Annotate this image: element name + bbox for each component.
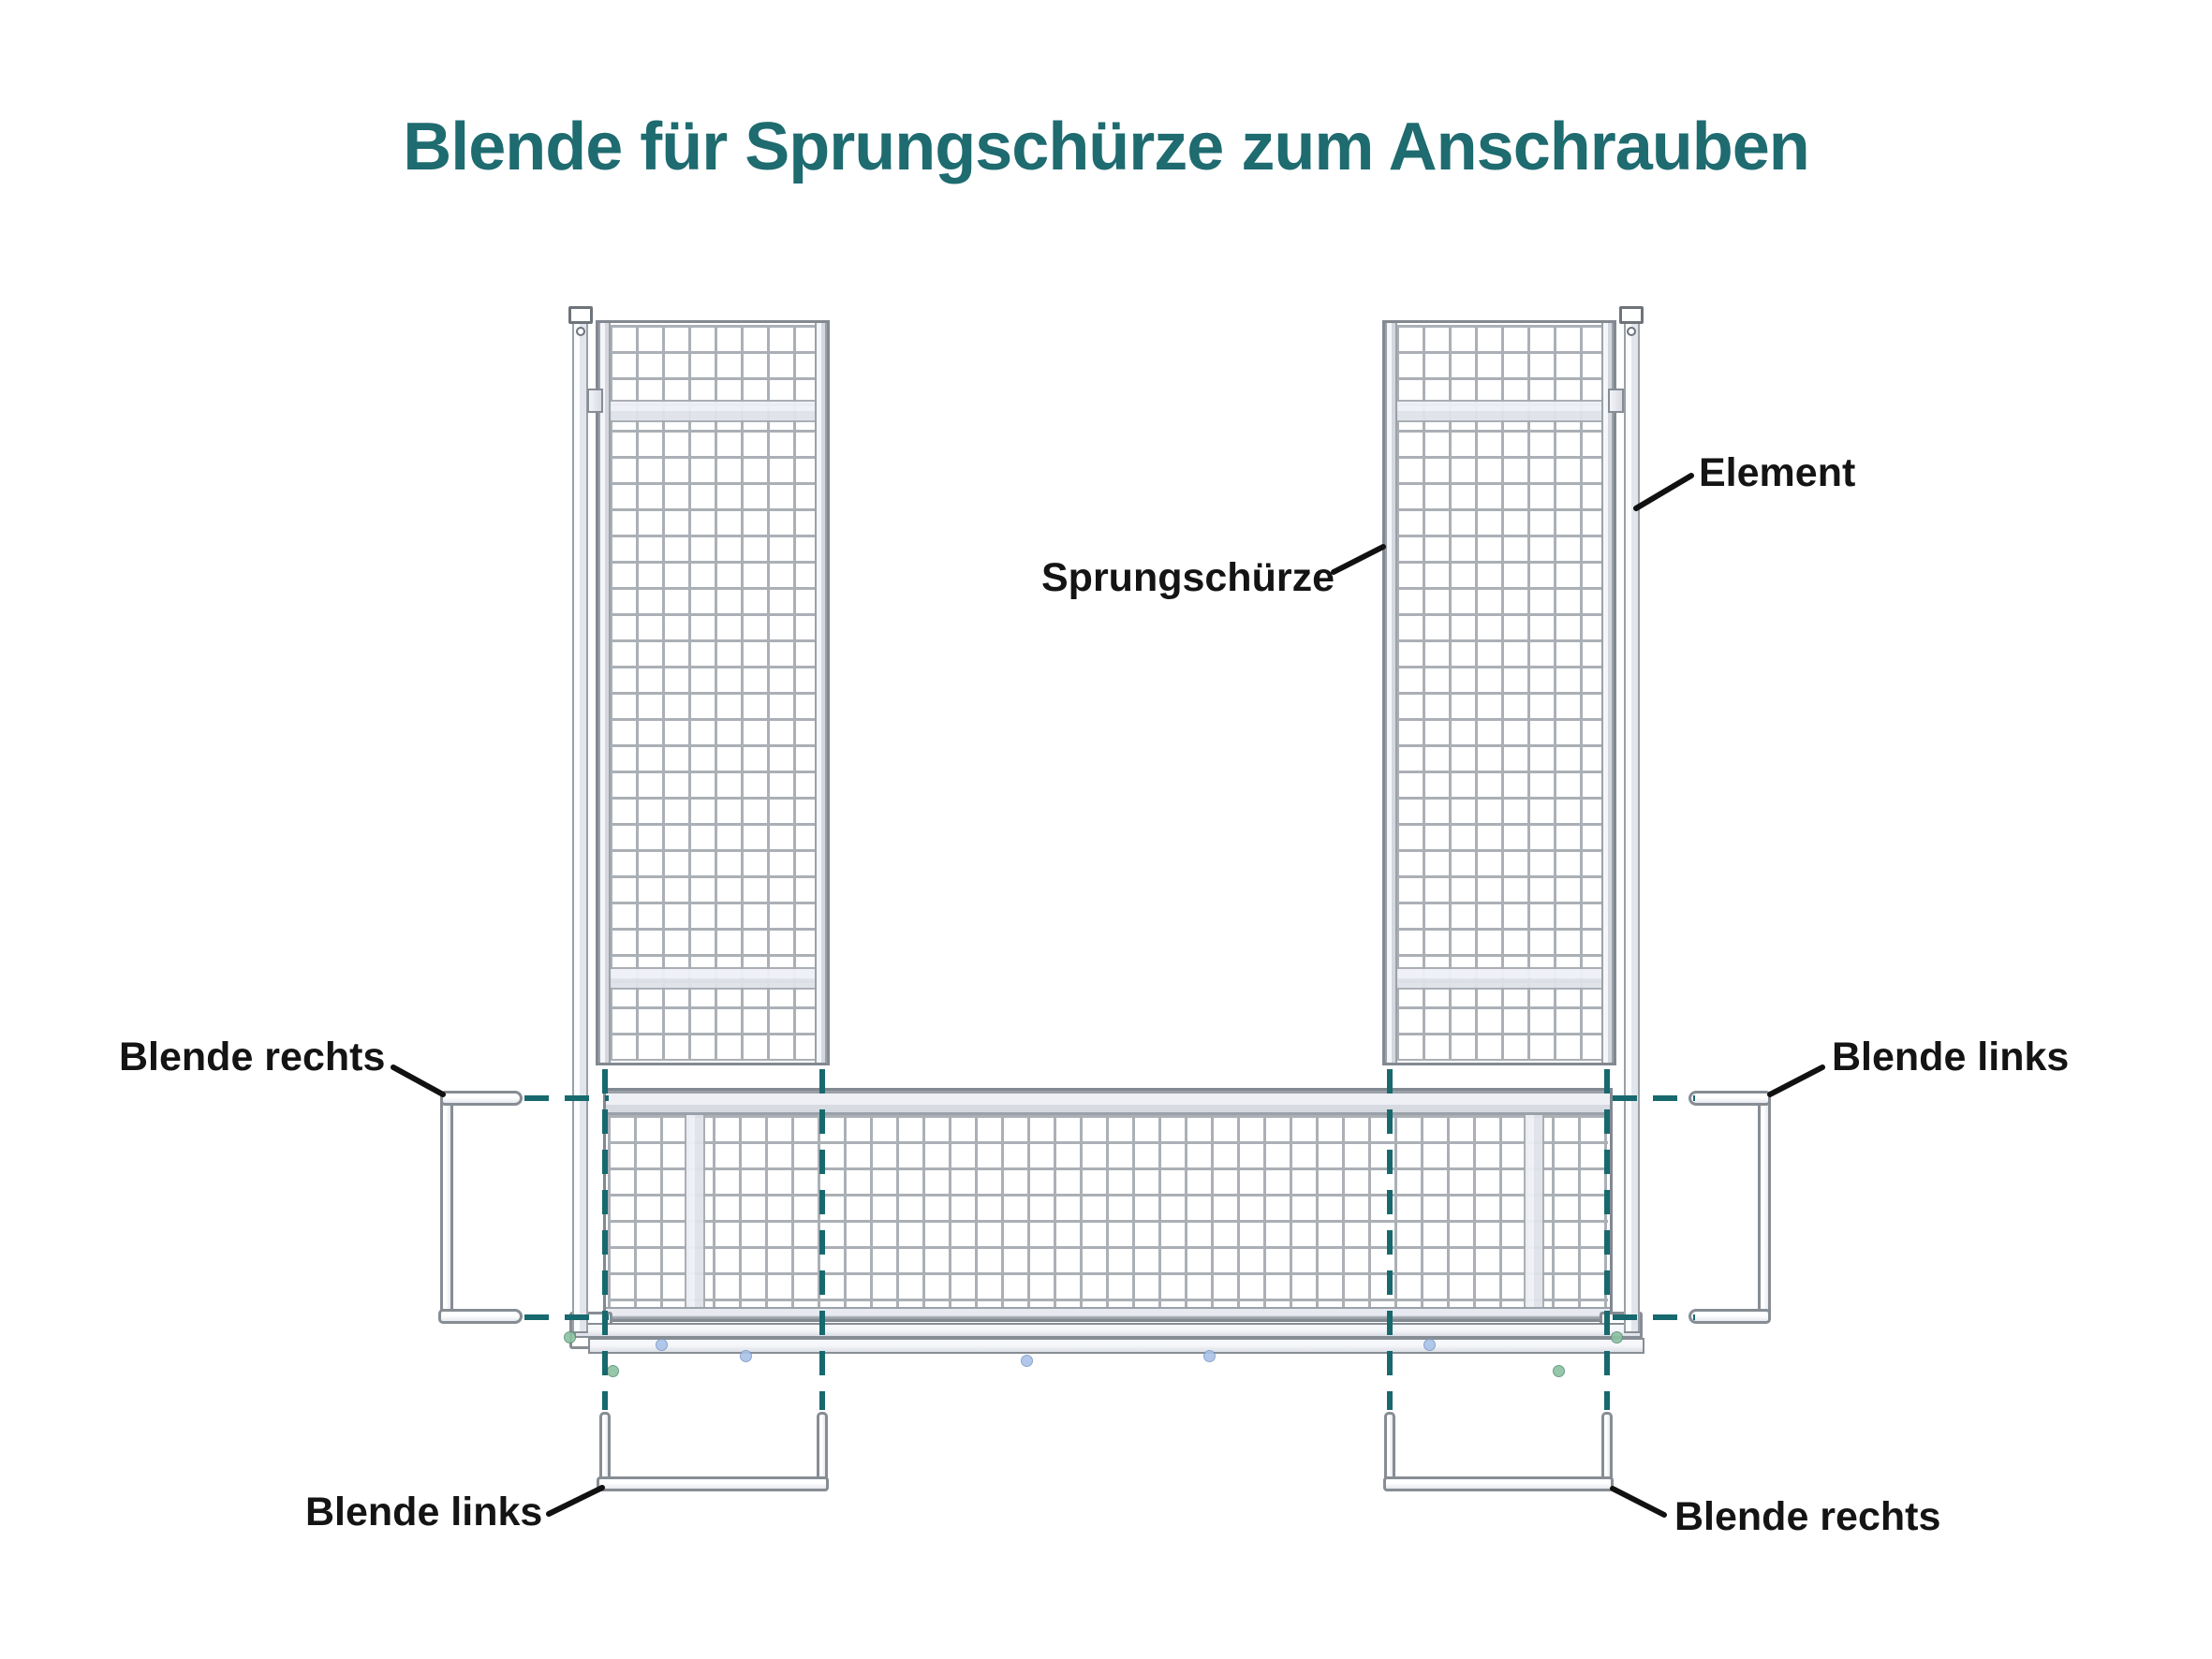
frame-rail-upper	[574, 1323, 1642, 1338]
panel-rail-bottom-bottom	[606, 1307, 1610, 1319]
mesh-panel-left	[596, 320, 830, 1065]
blende-links-bottom-bar	[597, 1476, 829, 1491]
label-sprungschuerze: Sprungschürze	[1041, 556, 1335, 600]
fastener-dot	[1553, 1365, 1565, 1377]
fastener-dot	[564, 1331, 576, 1343]
blende-rechts-side-bottom-arm	[438, 1309, 523, 1324]
blende-links-side-bar	[1758, 1092, 1771, 1324]
label-blende-links-bottom: Blende links	[305, 1490, 542, 1534]
mesh-panel-right	[1382, 320, 1616, 1065]
fastener-dot	[1203, 1350, 1216, 1362]
post-hole-right	[1627, 327, 1636, 336]
panel-rail-right-outer	[1601, 323, 1614, 1063]
support-tube-bottom-right	[1524, 1115, 1544, 1307]
leader-blende-links-mid	[1770, 1067, 1822, 1094]
leader-element	[1636, 476, 1691, 508]
leader-blende-links-bottom	[549, 1488, 602, 1514]
element-post-right	[1624, 322, 1640, 1333]
fastener-dot	[656, 1339, 668, 1351]
label-blende-links-mid: Blende links	[1832, 1035, 2069, 1079]
annotation-lines	[0, 0, 2212, 1659]
fastener-dot	[1423, 1339, 1436, 1351]
mesh-grid-right	[1396, 325, 1602, 1061]
page-title: Blende für Sprungschürze zum Anschrauben	[0, 109, 2212, 185]
diagram-canvas: Blende für Sprungschürze zum Anschrauben	[0, 0, 2212, 1659]
leader-blende-rechts-mid	[393, 1067, 443, 1094]
blende-rechts-side-bar	[440, 1092, 453, 1324]
post-bracket-right	[1608, 389, 1624, 413]
blende-rechts-side-top-arm	[440, 1091, 523, 1106]
blende-rechts-bottom-bar	[1383, 1476, 1614, 1491]
label-blende-rechts-bottom: Blende rechts	[1674, 1495, 1940, 1539]
fastener-dot	[607, 1365, 619, 1377]
post-hole-left	[576, 327, 585, 336]
support-tube-left-lower	[610, 967, 816, 990]
mesh-grid-bottom	[608, 1115, 1608, 1307]
panel-rail-left-inner	[815, 323, 827, 1063]
blende-links-side-top-arm	[1688, 1091, 1771, 1106]
panel-rail-bottom-top	[606, 1091, 1610, 1115]
support-tube-left-upper	[610, 400, 816, 422]
post-cap-right	[1619, 306, 1644, 324]
support-tube-right-upper	[1396, 400, 1602, 422]
leader-blende-rechts-bottom	[1613, 1489, 1664, 1515]
element-post-left	[572, 322, 588, 1333]
label-element: Element	[1699, 451, 1855, 495]
fastener-dot	[740, 1350, 752, 1362]
leader-sprungschuerze	[1334, 547, 1383, 572]
blende-rechts-bottom-left-leg	[1384, 1412, 1395, 1483]
post-cap-left	[568, 306, 593, 324]
blende-links-side-bottom-arm	[1688, 1309, 1771, 1324]
fastener-dot	[1611, 1331, 1623, 1343]
blende-links-bottom-left-leg	[599, 1412, 611, 1483]
blende-links-bottom-right-leg	[817, 1412, 828, 1483]
panel-rail-right-inner	[1385, 323, 1397, 1063]
support-tube-right-lower	[1396, 967, 1602, 990]
fastener-dot	[1021, 1355, 1033, 1367]
mesh-panel-bottom	[603, 1088, 1613, 1322]
label-blende-rechts-mid: Blende rechts	[119, 1035, 385, 1079]
mesh-grid-left	[610, 325, 816, 1061]
support-tube-bottom-left	[685, 1115, 705, 1307]
blende-rechts-bottom-right-leg	[1601, 1412, 1613, 1483]
post-bracket-left	[587, 389, 603, 413]
panel-rail-left-outer	[598, 323, 611, 1063]
